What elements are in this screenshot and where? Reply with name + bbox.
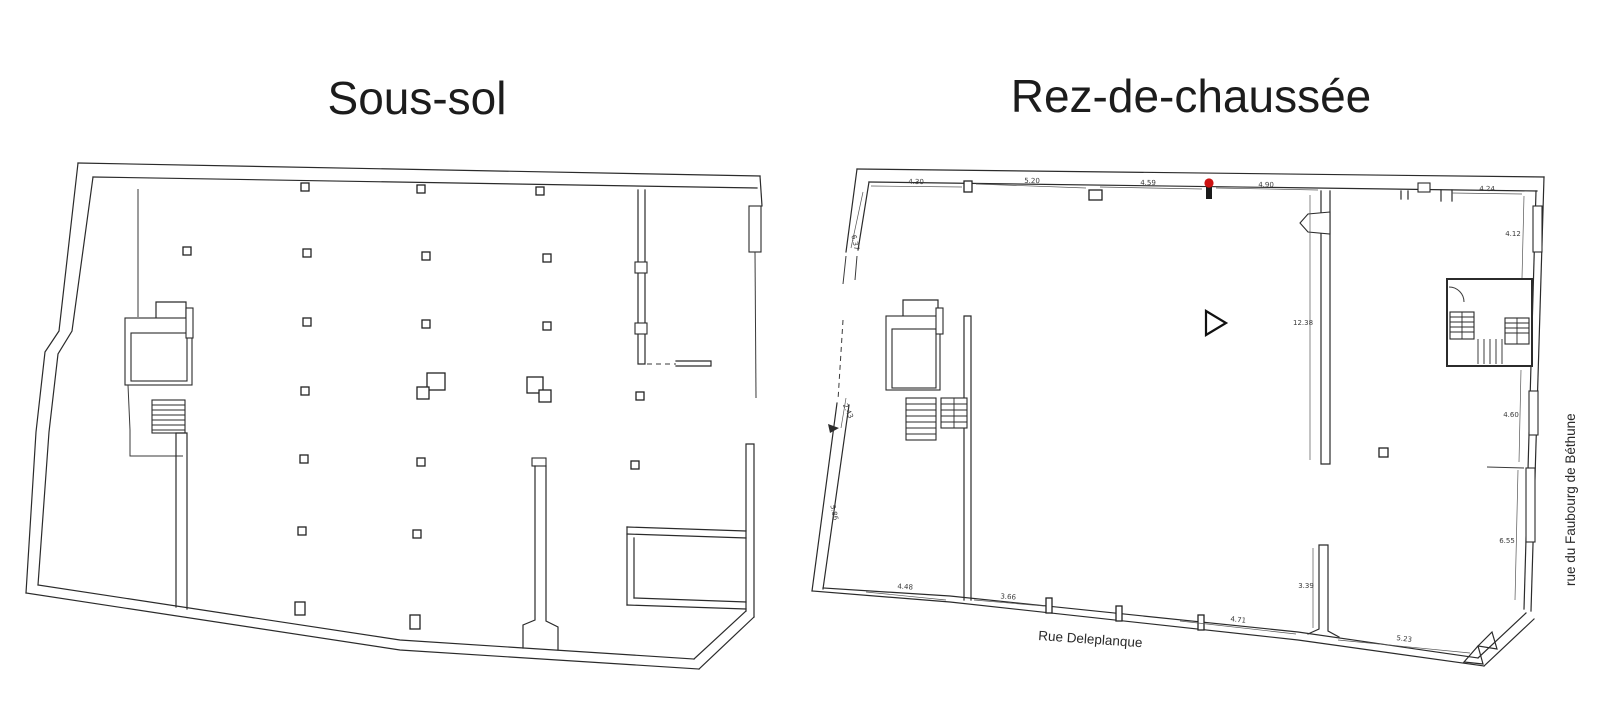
floorplan-page: Sous-sol Rez-de-chaussée: [0, 0, 1600, 705]
dimension-label: 4.71: [1230, 615, 1246, 625]
sous-sol-plan: [26, 163, 762, 669]
corner-door-mark: [1464, 646, 1483, 664]
dimension-label: 5.23: [1396, 634, 1412, 644]
dimension-label: 4.59: [1140, 179, 1156, 187]
floorplan-canvas: Sous-sol Rez-de-chaussée: [0, 0, 1600, 705]
left-plan-title: Sous-sol: [328, 72, 507, 124]
dimension-label: 3.66: [1000, 592, 1017, 601]
dimension-label: 5.86: [828, 504, 839, 521]
right-plan-title: Rez-de-chaussée: [1011, 70, 1372, 122]
dimension-label: 12.38: [1293, 319, 1313, 327]
window-mark: [749, 206, 761, 252]
direction-triangle: [1206, 311, 1226, 335]
dimension-label: 4.24: [1479, 185, 1495, 193]
rez-de-chaussee-plan: 4.305.204.594.904.246.3712.384.124.606.5…: [812, 169, 1544, 666]
window-mark: [1533, 206, 1542, 252]
dimension-label: 4.90: [1258, 181, 1274, 189]
dimension-label: 4.30: [908, 178, 924, 186]
window-mark: [1529, 391, 1538, 435]
dimension-label: 6.55: [1499, 537, 1515, 545]
marker-post: [1206, 186, 1212, 199]
door-leaf: [1300, 212, 1330, 234]
dimension-label: 4.12: [1505, 230, 1521, 238]
dimension-label: 4.60: [1503, 411, 1519, 419]
window-mark: [1526, 468, 1535, 542]
dimension-label: 3.39: [1298, 582, 1314, 590]
red-survey-point: [1204, 178, 1213, 187]
dimension-label: 4.48: [897, 582, 913, 591]
street-label-bottom: Rue Deleplanque: [1038, 628, 1143, 650]
street-label-side: rue du Faubourg de Béthune: [1563, 413, 1578, 586]
dimension-label: 5.20: [1024, 177, 1040, 185]
dimension-label: 6.37: [849, 234, 860, 251]
